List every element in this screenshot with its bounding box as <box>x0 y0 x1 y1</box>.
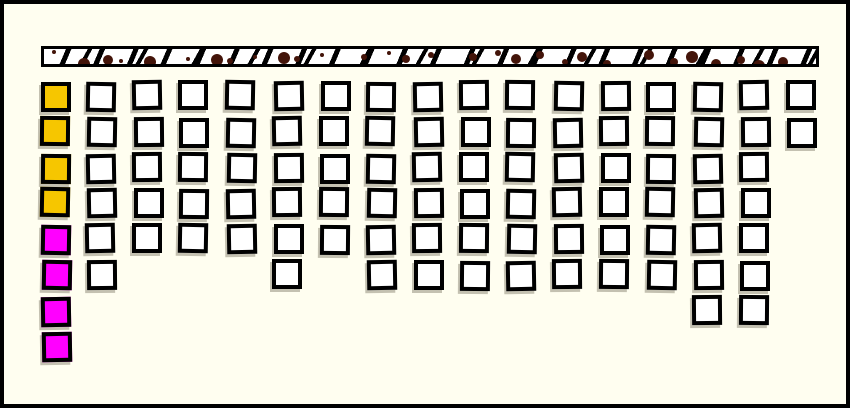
cell-white-r5c8[interactable] <box>366 225 397 256</box>
cell-white-r4c9[interactable] <box>414 188 444 218</box>
bar-speckle-dot <box>52 50 56 54</box>
cell-white-r5c4[interactable] <box>178 223 209 254</box>
bar-speckle-dot <box>753 60 765 67</box>
outer-frame <box>0 0 850 408</box>
cell-white-r6c15[interactable] <box>694 260 724 290</box>
cell-white-r1c11[interactable] <box>505 80 535 110</box>
bar-speckle-dot <box>361 54 367 60</box>
cell-white-r4c4[interactable] <box>179 189 209 219</box>
bar-speckle-dot <box>253 55 257 59</box>
cell-white-r1c4[interactable] <box>178 80 208 110</box>
cell-white-r4c15[interactable] <box>694 188 725 219</box>
cell-magenta-r8c1[interactable] <box>42 332 73 363</box>
cell-white-r2c11[interactable] <box>506 118 536 148</box>
bar-speckle-dot <box>144 56 156 67</box>
cell-white-r1c9[interactable] <box>413 82 444 113</box>
cell-white-r3c2[interactable] <box>86 154 117 185</box>
cell-white-r2c12[interactable] <box>553 118 584 149</box>
cell-yellow-r2c1[interactable] <box>40 116 70 146</box>
bar-speckle-dot <box>778 57 788 67</box>
cell-white-r5c11[interactable] <box>507 224 538 255</box>
cell-white-r1c16[interactable] <box>739 80 770 111</box>
cell-white-r2c9[interactable] <box>414 117 445 148</box>
cell-white-r5c5[interactable] <box>227 224 258 255</box>
cell-white-r5c10[interactable] <box>459 223 489 253</box>
cell-white-r5c16[interactable] <box>739 223 769 253</box>
bar-speckle-dot <box>211 54 223 66</box>
bar-speckle-dot <box>603 60 611 67</box>
cell-white-r1c15[interactable] <box>693 82 724 113</box>
cell-white-r6c12[interactable] <box>552 259 582 289</box>
cell-white-r2c3[interactable] <box>134 117 164 147</box>
cell-white-r3c12[interactable] <box>554 153 585 184</box>
cell-white-r4c5[interactable] <box>226 189 257 220</box>
cell-yellow-r4c1[interactable] <box>40 187 71 218</box>
cell-white-r2c17[interactable] <box>787 118 817 148</box>
cell-white-r5c6[interactable] <box>274 224 304 254</box>
cell-white-r2c8[interactable] <box>365 116 396 147</box>
cell-white-r2c2[interactable] <box>87 117 118 148</box>
cell-white-r1c5[interactable] <box>225 80 256 111</box>
cell-magenta-r7c1[interactable] <box>41 297 72 328</box>
cell-white-r4c6[interactable] <box>272 187 302 217</box>
cell-white-r3c15[interactable] <box>693 154 724 185</box>
cell-white-r2c5[interactable] <box>226 118 257 149</box>
cell-white-r6c6[interactable] <box>272 259 302 289</box>
bar-speckle-dot <box>711 59 721 67</box>
bar-speckle-dot <box>387 51 391 55</box>
cell-white-r5c14[interactable] <box>646 225 677 256</box>
cell-white-r4c12[interactable] <box>552 187 583 218</box>
bar-speckle-dot <box>511 54 521 64</box>
cell-white-r4c8[interactable] <box>367 188 398 219</box>
bar-speckle-dot <box>428 52 434 58</box>
cell-white-r3c10[interactable] <box>459 152 489 182</box>
cell-white-r2c16[interactable] <box>741 117 771 147</box>
bar-speckle-dot <box>78 58 90 67</box>
cell-magenta-r5c1[interactable] <box>41 225 72 256</box>
cell-white-r3c9[interactable] <box>412 152 443 183</box>
cell-white-r5c7[interactable] <box>320 225 350 255</box>
bar-speckle-dot <box>562 59 568 65</box>
cell-white-r1c10[interactable] <box>459 80 489 110</box>
cell-white-r7c16[interactable] <box>739 295 769 325</box>
cell-white-r6c8[interactable] <box>367 260 398 291</box>
cell-white-r3c7[interactable] <box>320 154 350 184</box>
cell-white-r1c14[interactable] <box>646 82 676 112</box>
cell-white-r2c10[interactable] <box>461 117 491 147</box>
bar-speckle-dot <box>119 59 123 63</box>
bar-speckle-dot <box>670 58 678 66</box>
cell-white-r2c6[interactable] <box>272 116 303 147</box>
cell-white-r1c13[interactable] <box>601 81 631 111</box>
cell-white-r2c15[interactable] <box>694 117 725 148</box>
cell-white-r2c13[interactable] <box>599 116 629 146</box>
cell-white-r6c14[interactable] <box>647 260 678 291</box>
cell-white-r4c7[interactable] <box>319 187 349 217</box>
cell-white-r3c8[interactable] <box>366 154 397 185</box>
cell-white-r4c2[interactable] <box>87 188 118 219</box>
bar-speckle-dot <box>686 51 698 63</box>
bar-speckle-dot <box>495 50 501 56</box>
cell-white-r6c16[interactable] <box>740 261 770 291</box>
cell-white-r4c3[interactable] <box>134 188 164 218</box>
cell-white-r5c12[interactable] <box>554 224 584 254</box>
cell-white-r5c15[interactable] <box>692 223 723 254</box>
cell-white-r1c12[interactable] <box>554 81 585 112</box>
cell-white-r3c6[interactable] <box>274 153 304 183</box>
cell-white-r3c4[interactable] <box>178 152 208 182</box>
cell-white-r6c13[interactable] <box>599 259 629 289</box>
cell-white-r7c15[interactable] <box>692 295 722 325</box>
cell-yellow-r3c1[interactable] <box>41 154 71 184</box>
cell-white-r1c17[interactable] <box>786 80 816 110</box>
cell-white-r3c14[interactable] <box>646 154 676 184</box>
cell-white-r4c10[interactable] <box>460 189 490 219</box>
cell-white-r2c7[interactable] <box>319 116 349 146</box>
bar-speckle-dot <box>737 56 745 64</box>
cell-yellow-r1c1[interactable] <box>41 82 71 112</box>
cell-white-r3c16[interactable] <box>739 152 769 182</box>
bar-speckle-dot <box>320 53 324 57</box>
cell-white-r5c3[interactable] <box>132 223 162 253</box>
cell-magenta-r6c1[interactable] <box>42 260 73 291</box>
cell-white-r1c2[interactable] <box>86 82 117 113</box>
cell-white-r4c14[interactable] <box>645 187 676 218</box>
cell-white-r1c3[interactable] <box>132 80 163 111</box>
cell-white-r4c13[interactable] <box>599 187 629 217</box>
cell-white-r1c6[interactable] <box>274 81 305 112</box>
cell-white-r5c9[interactable] <box>412 223 442 253</box>
cell-white-r3c3[interactable] <box>132 152 162 182</box>
cell-white-r1c8[interactable] <box>366 82 396 112</box>
cell-white-r3c11[interactable] <box>505 152 536 183</box>
hatched-bar <box>41 46 819 67</box>
cell-white-r4c11[interactable] <box>506 189 537 220</box>
cell-white-r4c16[interactable] <box>741 188 771 218</box>
cell-white-r5c2[interactable] <box>85 223 116 254</box>
bar-speckle-dot <box>186 57 190 61</box>
cell-white-r6c9[interactable] <box>414 260 444 290</box>
cell-white-r2c4[interactable] <box>179 118 209 148</box>
cell-white-r3c5[interactable] <box>227 153 258 184</box>
cell-white-r6c11[interactable] <box>506 261 537 292</box>
cell-white-r6c10[interactable] <box>460 261 490 291</box>
cell-white-r6c2[interactable] <box>87 260 117 290</box>
cell-white-r5c13[interactable] <box>600 225 630 255</box>
cell-white-r3c13[interactable] <box>601 153 631 183</box>
cell-white-r1c7[interactable] <box>321 81 351 111</box>
cell-white-r2c14[interactable] <box>645 116 675 146</box>
